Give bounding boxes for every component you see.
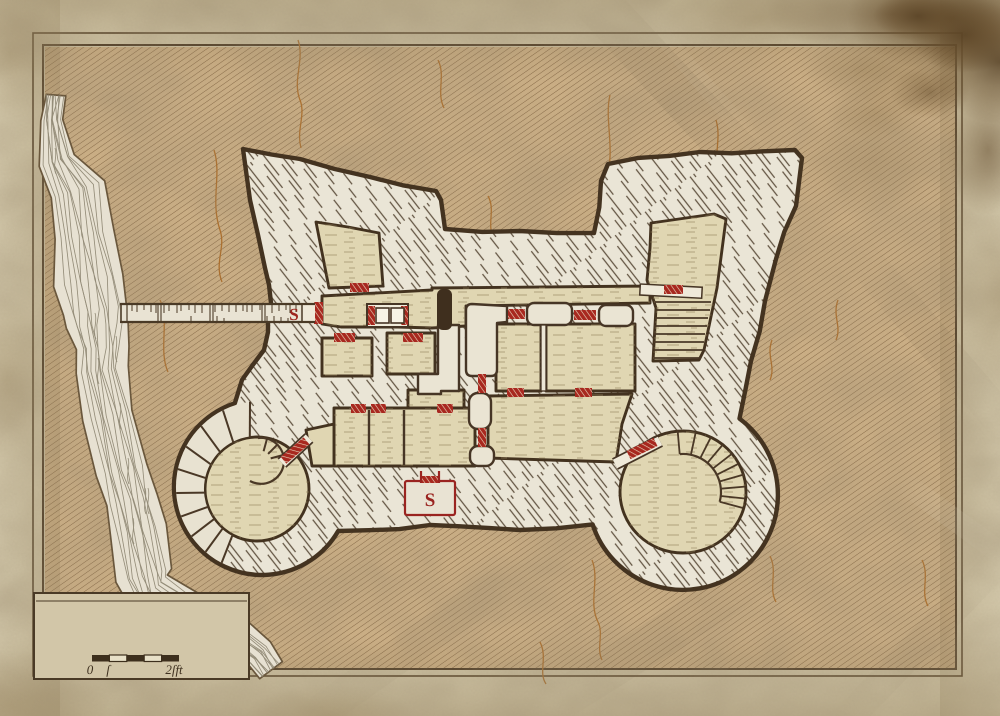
svg-text:S: S <box>425 490 436 511</box>
svg-text:S: S <box>289 305 298 324</box>
svg-text:2ſft: 2ſft <box>165 662 183 677</box>
svg-text:0: 0 <box>87 662 94 677</box>
